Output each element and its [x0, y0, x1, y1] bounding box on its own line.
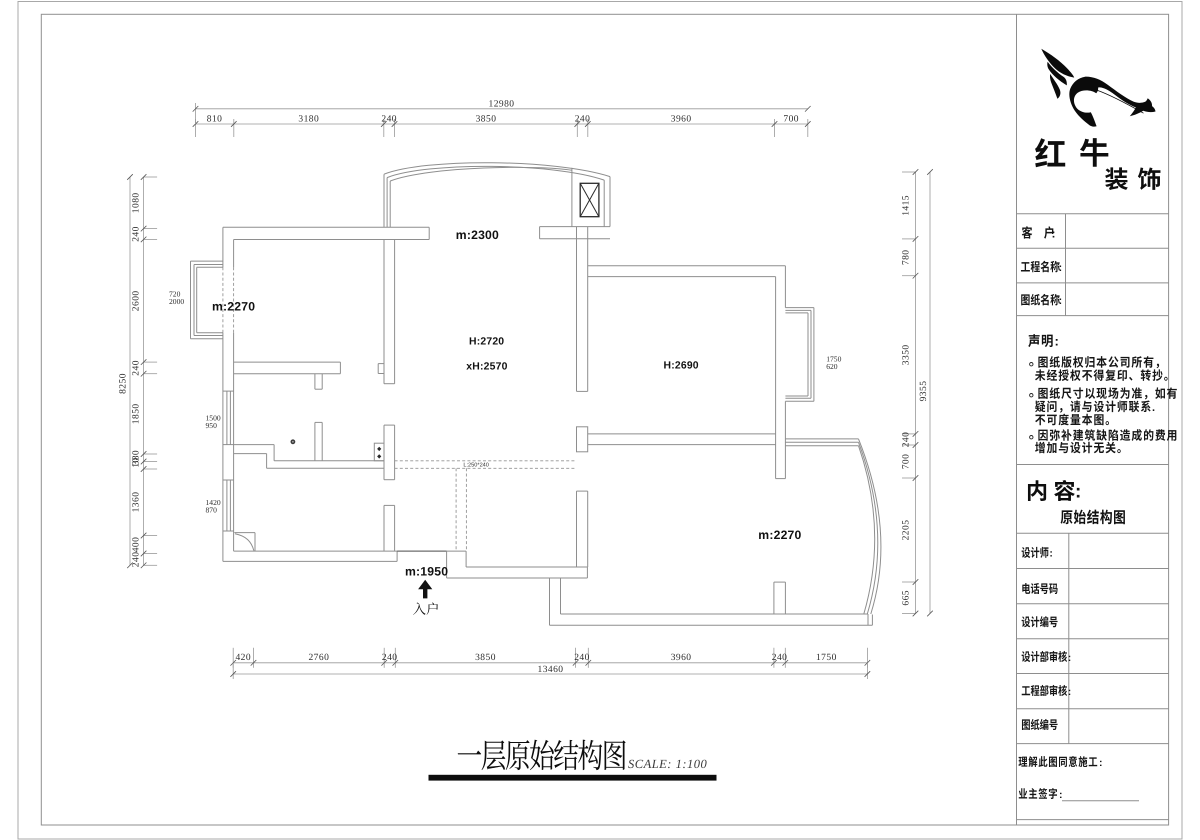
svg-text:240: 240 [132, 226, 142, 242]
svg-text:2760: 2760 [308, 653, 329, 663]
svg-text:240: 240 [132, 552, 142, 568]
svg-text:240: 240 [381, 114, 397, 124]
svg-text:240: 240 [902, 432, 912, 448]
svg-text:3180: 3180 [298, 114, 319, 124]
svg-text:2000: 2000 [169, 297, 184, 306]
svg-text:3960: 3960 [671, 114, 692, 124]
svg-text::: : [1099, 757, 1103, 769]
svg-text:.: . [1152, 402, 1155, 414]
svg-text:L:250*240: L:250*240 [463, 462, 489, 468]
svg-text:3850: 3850 [475, 653, 496, 663]
svg-text:810: 810 [207, 114, 223, 124]
svg-text:3960: 3960 [671, 653, 692, 663]
svg-text:1080: 1080 [132, 192, 142, 213]
svg-text:m:2300: m:2300 [456, 228, 499, 242]
svg-text::: : [1055, 333, 1059, 348]
svg-text::: : [1049, 548, 1053, 560]
svg-text:13460: 13460 [538, 665, 564, 675]
svg-text:1850: 1850 [132, 403, 142, 424]
svg-text:m:2270: m:2270 [758, 528, 801, 542]
svg-text:240: 240 [772, 653, 788, 663]
svg-text:1750: 1750 [816, 653, 837, 663]
svg-text:700: 700 [902, 454, 912, 470]
svg-text:240: 240 [382, 653, 398, 663]
svg-text::: : [1068, 652, 1072, 664]
svg-text:12980: 12980 [489, 99, 515, 109]
svg-text:10: 10 [132, 457, 142, 467]
svg-text:9355: 9355 [919, 381, 929, 402]
svg-text:870: 870 [206, 506, 218, 515]
svg-text:3850: 3850 [476, 114, 497, 124]
svg-text::: : [1052, 226, 1056, 240]
svg-text:H:2690: H:2690 [664, 360, 699, 371]
svg-text:240: 240 [574, 653, 590, 663]
svg-text:780: 780 [902, 249, 912, 265]
svg-text::: : [1059, 262, 1063, 274]
svg-text:240: 240 [132, 360, 142, 376]
svg-text:m:2270: m:2270 [212, 299, 255, 313]
svg-text:400: 400 [132, 537, 142, 553]
svg-text:3350: 3350 [902, 344, 912, 365]
svg-text::: : [1059, 789, 1063, 801]
svg-text::: : [1059, 295, 1063, 307]
svg-text:m:1950: m:1950 [405, 565, 448, 579]
svg-text:420: 420 [235, 653, 251, 663]
svg-text:2600: 2600 [132, 290, 142, 311]
svg-text::: : [1075, 482, 1081, 503]
svg-text:xH:2570: xH:2570 [466, 361, 507, 372]
svg-text:2205: 2205 [902, 520, 912, 541]
svg-text:SCALE: 1:100: SCALE: 1:100 [628, 757, 708, 771]
svg-text:1415: 1415 [902, 195, 912, 216]
svg-text:240: 240 [575, 114, 591, 124]
svg-text:H:2720: H:2720 [469, 336, 504, 347]
svg-text:1360: 1360 [132, 492, 142, 513]
svg-text:620: 620 [826, 362, 838, 371]
svg-text:950: 950 [206, 421, 218, 430]
svg-text::: : [1068, 686, 1072, 698]
svg-text:700: 700 [783, 114, 799, 124]
svg-text:665: 665 [902, 590, 912, 606]
svg-text:8250: 8250 [118, 373, 128, 394]
